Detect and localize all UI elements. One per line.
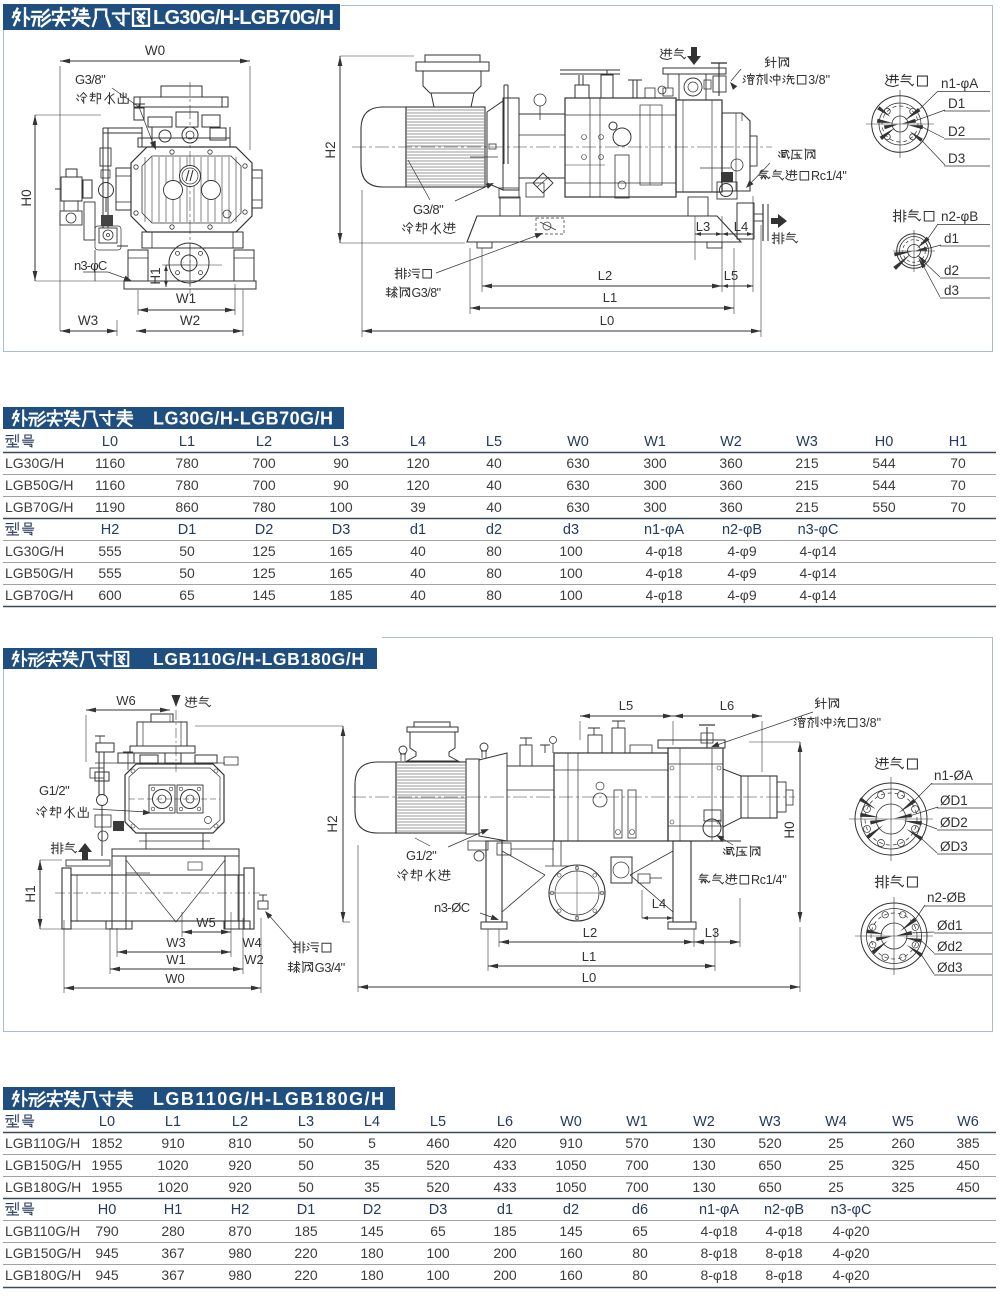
svg-text:145: 145 bbox=[559, 1223, 583, 1239]
svg-text:180: 180 bbox=[360, 1245, 384, 1261]
svg-text:80: 80 bbox=[486, 565, 502, 581]
svg-text:185: 185 bbox=[493, 1223, 517, 1239]
svg-text:d3: d3 bbox=[944, 283, 959, 298]
svg-text:145: 145 bbox=[252, 587, 276, 603]
svg-text:LG30G/H: LG30G/H bbox=[5, 543, 64, 559]
svg-text:185: 185 bbox=[329, 587, 353, 603]
svg-text:W2: W2 bbox=[180, 313, 200, 328]
svg-text:LGB70G/H: LGB70G/H bbox=[5, 499, 73, 515]
svg-text:700: 700 bbox=[625, 1179, 649, 1195]
svg-text:1020: 1020 bbox=[157, 1157, 188, 1173]
svg-text:1955: 1955 bbox=[91, 1179, 122, 1195]
svg-text:H2: H2 bbox=[323, 141, 338, 158]
svg-text:LGB150G/H: LGB150G/H bbox=[5, 1245, 81, 1261]
svg-text:125: 125 bbox=[252, 543, 276, 559]
svg-text:4-φ14: 4-φ14 bbox=[799, 587, 836, 603]
svg-text:630: 630 bbox=[566, 455, 590, 471]
svg-text:50: 50 bbox=[298, 1157, 314, 1173]
svg-text:260: 260 bbox=[891, 1135, 915, 1151]
svg-text:215: 215 bbox=[795, 477, 819, 493]
svg-text:L4: L4 bbox=[364, 1114, 380, 1130]
svg-text:D1: D1 bbox=[297, 1202, 316, 1218]
svg-text:40: 40 bbox=[486, 499, 502, 515]
svg-text:120: 120 bbox=[406, 455, 430, 471]
svg-text:H2: H2 bbox=[231, 1202, 250, 1218]
svg-text:3/8": 3/8" bbox=[859, 716, 881, 730]
svg-text:W0: W0 bbox=[145, 43, 165, 58]
svg-text:n3-φC: n3-φC bbox=[798, 522, 839, 538]
svg-text:4-φ9: 4-φ9 bbox=[727, 587, 757, 603]
svg-text:d1: d1 bbox=[944, 231, 959, 246]
svg-text:700: 700 bbox=[252, 455, 276, 471]
svg-text:L5: L5 bbox=[619, 698, 633, 713]
svg-text:D1: D1 bbox=[948, 96, 965, 111]
svg-text:L2: L2 bbox=[583, 925, 597, 940]
svg-text:700: 700 bbox=[625, 1157, 649, 1173]
svg-text:50: 50 bbox=[179, 565, 195, 581]
svg-text:Ød1: Ød1 bbox=[937, 918, 963, 933]
svg-text:H1: H1 bbox=[148, 267, 163, 284]
svg-text:325: 325 bbox=[891, 1179, 915, 1195]
svg-text:W0: W0 bbox=[165, 971, 185, 986]
svg-text:L3: L3 bbox=[298, 1114, 314, 1130]
svg-text:70: 70 bbox=[950, 477, 966, 493]
svg-text:D3: D3 bbox=[332, 522, 351, 538]
svg-text:L0: L0 bbox=[600, 313, 614, 328]
svg-text:4-φ20: 4-φ20 bbox=[832, 1223, 869, 1239]
svg-text:W6: W6 bbox=[957, 1114, 979, 1130]
svg-text:W4: W4 bbox=[242, 935, 262, 950]
svg-text:W1: W1 bbox=[166, 952, 186, 967]
svg-text:4-φ18: 4-φ18 bbox=[765, 1223, 802, 1239]
svg-text:d2: d2 bbox=[944, 263, 959, 278]
svg-text:L5: L5 bbox=[430, 1114, 446, 1130]
svg-text:4-φ9: 4-φ9 bbox=[727, 565, 757, 581]
svg-text:4-φ18: 4-φ18 bbox=[645, 587, 682, 603]
svg-text:145: 145 bbox=[360, 1223, 384, 1239]
svg-text:L5: L5 bbox=[724, 268, 738, 283]
svg-text:G1/2": G1/2" bbox=[39, 783, 70, 798]
svg-text:LGB110G/H-LGB180G/H: LGB110G/H-LGB180G/H bbox=[153, 1089, 384, 1109]
svg-text:125: 125 bbox=[252, 565, 276, 581]
svg-text:W2: W2 bbox=[720, 434, 742, 450]
svg-text:4-φ18: 4-φ18 bbox=[700, 1223, 737, 1239]
svg-text:W1: W1 bbox=[644, 434, 666, 450]
svg-text:4-φ14: 4-φ14 bbox=[799, 543, 836, 559]
svg-text:433: 433 bbox=[493, 1179, 517, 1195]
svg-text:L1: L1 bbox=[165, 1114, 181, 1130]
svg-text:4-φ9: 4-φ9 bbox=[727, 543, 757, 559]
svg-text:920: 920 bbox=[228, 1157, 252, 1173]
svg-text:LG30G/H: LG30G/H bbox=[5, 455, 64, 471]
svg-text:8-φ18: 8-φ18 bbox=[765, 1267, 802, 1283]
svg-text:945: 945 bbox=[95, 1245, 119, 1261]
svg-text:W3: W3 bbox=[796, 434, 818, 450]
svg-text:810: 810 bbox=[228, 1135, 252, 1151]
svg-text:300: 300 bbox=[643, 477, 667, 493]
svg-text:L4: L4 bbox=[734, 219, 748, 234]
svg-text:n1-ØA: n1-ØA bbox=[934, 768, 973, 783]
svg-text:35: 35 bbox=[364, 1179, 380, 1195]
svg-text:100: 100 bbox=[426, 1267, 450, 1283]
svg-text:870: 870 bbox=[228, 1223, 252, 1239]
svg-text:600: 600 bbox=[98, 587, 122, 603]
svg-text:1852: 1852 bbox=[91, 1135, 122, 1151]
svg-text:Ød3: Ød3 bbox=[937, 960, 963, 975]
svg-text:65: 65 bbox=[179, 587, 195, 603]
svg-text:H1: H1 bbox=[23, 885, 38, 902]
svg-text:L2: L2 bbox=[598, 268, 612, 283]
svg-text:L5: L5 bbox=[486, 434, 502, 450]
svg-text:L4: L4 bbox=[410, 434, 426, 450]
svg-text:280: 280 bbox=[161, 1223, 185, 1239]
svg-text:W0: W0 bbox=[567, 434, 589, 450]
svg-text:H1: H1 bbox=[164, 1202, 183, 1218]
svg-text:200: 200 bbox=[493, 1267, 517, 1283]
svg-text:433: 433 bbox=[493, 1157, 517, 1173]
svg-text:367: 367 bbox=[161, 1245, 185, 1261]
svg-text:200: 200 bbox=[493, 1245, 517, 1261]
svg-text:630: 630 bbox=[566, 477, 590, 493]
svg-text:25: 25 bbox=[828, 1179, 844, 1195]
svg-text:650: 650 bbox=[758, 1179, 782, 1195]
svg-text:W6: W6 bbox=[116, 693, 136, 708]
svg-text:L0: L0 bbox=[582, 970, 596, 985]
svg-text:520: 520 bbox=[426, 1157, 450, 1173]
svg-text:L1: L1 bbox=[582, 949, 596, 964]
svg-text:1955: 1955 bbox=[91, 1157, 122, 1173]
svg-text:80: 80 bbox=[632, 1245, 648, 1261]
svg-text:D3: D3 bbox=[948, 151, 965, 166]
svg-text:50: 50 bbox=[298, 1135, 314, 1151]
svg-text:D3: D3 bbox=[429, 1202, 448, 1218]
svg-text:25: 25 bbox=[828, 1157, 844, 1173]
svg-text:d2: d2 bbox=[563, 1202, 579, 1218]
svg-text:50: 50 bbox=[298, 1179, 314, 1195]
svg-text:65: 65 bbox=[632, 1223, 648, 1239]
svg-text:ØD2: ØD2 bbox=[940, 815, 968, 830]
svg-text:Ød2: Ød2 bbox=[937, 939, 963, 954]
svg-text:360: 360 bbox=[719, 499, 743, 515]
svg-text:780: 780 bbox=[175, 477, 199, 493]
svg-text:220: 220 bbox=[294, 1245, 318, 1261]
svg-text:90: 90 bbox=[333, 477, 349, 493]
svg-text:d1: d1 bbox=[497, 1202, 513, 1218]
svg-text:ØD1: ØD1 bbox=[940, 793, 968, 808]
svg-text:40: 40 bbox=[486, 455, 502, 471]
svg-text:D2: D2 bbox=[363, 1202, 382, 1218]
svg-text:L0: L0 bbox=[102, 434, 118, 450]
svg-text:980: 980 bbox=[228, 1267, 252, 1283]
svg-text:d2: d2 bbox=[486, 522, 502, 538]
svg-text:n1-φA: n1-φA bbox=[644, 522, 684, 538]
svg-text:570: 570 bbox=[625, 1135, 649, 1151]
svg-text:790: 790 bbox=[95, 1223, 119, 1239]
svg-text:L3: L3 bbox=[696, 219, 710, 234]
svg-text:D2: D2 bbox=[948, 124, 965, 139]
svg-text:450: 450 bbox=[956, 1157, 980, 1173]
svg-text:70: 70 bbox=[950, 455, 966, 471]
svg-text:160: 160 bbox=[559, 1245, 583, 1261]
svg-text:L3: L3 bbox=[705, 925, 719, 940]
svg-text:LGB50G/H: LGB50G/H bbox=[5, 477, 73, 493]
svg-text:n2-φB: n2-φB bbox=[764, 1202, 804, 1218]
svg-text:1160: 1160 bbox=[95, 455, 125, 471]
svg-text:d6: d6 bbox=[632, 1202, 648, 1218]
svg-text:L4: L4 bbox=[652, 896, 666, 911]
svg-text:50: 50 bbox=[179, 543, 195, 559]
svg-text:LG30G/H-LGB70G/H: LG30G/H-LGB70G/H bbox=[153, 7, 334, 29]
svg-text:LGB180G/H: LGB180G/H bbox=[5, 1179, 81, 1195]
svg-text:165: 165 bbox=[329, 543, 353, 559]
svg-text:H2: H2 bbox=[325, 815, 340, 832]
svg-text:1190: 1190 bbox=[95, 499, 125, 515]
svg-text:LGB180G/H: LGB180G/H bbox=[5, 1267, 81, 1283]
svg-text:65: 65 bbox=[430, 1223, 446, 1239]
svg-text:120: 120 bbox=[406, 477, 430, 493]
svg-text:1020: 1020 bbox=[157, 1179, 188, 1195]
svg-text:L3: L3 bbox=[333, 434, 349, 450]
svg-text:360: 360 bbox=[719, 455, 743, 471]
svg-text:LGB50G/H: LGB50G/H bbox=[5, 565, 73, 581]
svg-text:160: 160 bbox=[559, 1267, 583, 1283]
svg-text:G1/2": G1/2" bbox=[406, 848, 437, 863]
svg-text:90: 90 bbox=[333, 455, 349, 471]
svg-text:1160: 1160 bbox=[95, 477, 125, 493]
svg-text:4-φ20: 4-φ20 bbox=[832, 1245, 869, 1261]
svg-text:LGB110G/H: LGB110G/H bbox=[5, 1223, 80, 1239]
svg-text:3/8": 3/8" bbox=[808, 73, 830, 87]
svg-text:L1: L1 bbox=[179, 434, 195, 450]
svg-text:W3: W3 bbox=[759, 1114, 781, 1130]
svg-text:215: 215 bbox=[795, 455, 819, 471]
svg-text:G3/8": G3/8" bbox=[75, 72, 106, 87]
svg-text:H0: H0 bbox=[875, 434, 894, 450]
svg-text:W1: W1 bbox=[626, 1114, 648, 1130]
svg-text:LGB110G/H: LGB110G/H bbox=[5, 1135, 80, 1151]
svg-text:L0: L0 bbox=[99, 1114, 115, 1130]
svg-text:910: 910 bbox=[559, 1135, 583, 1151]
svg-text:L2: L2 bbox=[256, 434, 272, 450]
svg-text:4-φ20: 4-φ20 bbox=[832, 1267, 869, 1283]
svg-text:G3/4": G3/4" bbox=[315, 960, 346, 975]
svg-text:300: 300 bbox=[643, 499, 667, 515]
svg-text:ØD3: ØD3 bbox=[940, 839, 968, 854]
svg-text:100: 100 bbox=[426, 1245, 450, 1261]
svg-text:8-φ18: 8-φ18 bbox=[700, 1267, 737, 1283]
svg-text:550: 550 bbox=[872, 499, 896, 515]
svg-text:n2-φB: n2-φB bbox=[941, 209, 978, 224]
svg-text:LG30G/H-LGB70G/H: LG30G/H-LGB70G/H bbox=[153, 409, 333, 429]
svg-text:385: 385 bbox=[956, 1135, 980, 1151]
svg-text:H2: H2 bbox=[101, 522, 120, 538]
svg-text:W1: W1 bbox=[176, 291, 196, 306]
svg-text:8-φ18: 8-φ18 bbox=[700, 1245, 737, 1261]
svg-text:W5: W5 bbox=[892, 1114, 914, 1130]
svg-text:L2: L2 bbox=[232, 1114, 248, 1130]
svg-text:100: 100 bbox=[559, 543, 583, 559]
svg-text:460: 460 bbox=[426, 1135, 450, 1151]
svg-text:215: 215 bbox=[795, 499, 819, 515]
svg-text:n2-φB: n2-φB bbox=[722, 522, 762, 538]
svg-text:4-φ14: 4-φ14 bbox=[799, 565, 836, 581]
svg-text:910: 910 bbox=[161, 1135, 185, 1151]
svg-text:130: 130 bbox=[692, 1157, 716, 1173]
svg-text:80: 80 bbox=[632, 1267, 648, 1283]
svg-text:W3: W3 bbox=[166, 935, 186, 950]
svg-text:H0: H0 bbox=[19, 189, 34, 206]
svg-text:520: 520 bbox=[758, 1135, 782, 1151]
svg-text:650: 650 bbox=[758, 1157, 782, 1173]
svg-text:25: 25 bbox=[828, 1135, 844, 1151]
svg-text:LGB150G/H: LGB150G/H bbox=[5, 1157, 81, 1173]
svg-text:L1: L1 bbox=[603, 290, 617, 305]
svg-text:40: 40 bbox=[410, 543, 426, 559]
svg-text:40: 40 bbox=[410, 587, 426, 603]
svg-text:Rc1/4": Rc1/4" bbox=[751, 873, 787, 887]
svg-text:39: 39 bbox=[410, 499, 426, 515]
svg-text:1050: 1050 bbox=[555, 1179, 586, 1195]
svg-text:360: 360 bbox=[719, 477, 743, 493]
svg-text:H1: H1 bbox=[949, 434, 968, 450]
svg-text:80: 80 bbox=[486, 587, 502, 603]
svg-text:700: 700 bbox=[252, 477, 276, 493]
svg-text:130: 130 bbox=[692, 1135, 716, 1151]
svg-text:35: 35 bbox=[364, 1157, 380, 1173]
svg-text:980: 980 bbox=[228, 1245, 252, 1261]
svg-text:4-φ18: 4-φ18 bbox=[645, 565, 682, 581]
svg-text:W5: W5 bbox=[196, 915, 216, 930]
svg-text:D1: D1 bbox=[178, 522, 197, 538]
svg-text:LGB70G/H: LGB70G/H bbox=[5, 587, 73, 603]
svg-text:W2: W2 bbox=[693, 1114, 715, 1130]
svg-text:544: 544 bbox=[872, 477, 896, 493]
svg-text:LGB110G/H-LGB180G/H: LGB110G/H-LGB180G/H bbox=[153, 649, 364, 669]
svg-text:80: 80 bbox=[486, 543, 502, 559]
svg-text:40: 40 bbox=[486, 477, 502, 493]
svg-text:Rc1/4": Rc1/4" bbox=[811, 169, 847, 183]
svg-text:G3/8": G3/8" bbox=[412, 286, 442, 300]
svg-text:L6: L6 bbox=[720, 698, 734, 713]
svg-text:W4: W4 bbox=[825, 1114, 847, 1130]
svg-text:367: 367 bbox=[161, 1267, 185, 1283]
svg-text:300: 300 bbox=[643, 455, 667, 471]
svg-text:185: 185 bbox=[294, 1223, 318, 1239]
svg-text:n3-φC: n3-φC bbox=[74, 258, 107, 273]
svg-text:W0: W0 bbox=[560, 1114, 582, 1130]
svg-text:220: 220 bbox=[294, 1267, 318, 1283]
svg-text:40: 40 bbox=[410, 565, 426, 581]
svg-text:n2-ØB: n2-ØB bbox=[927, 890, 966, 905]
svg-text:1050: 1050 bbox=[555, 1157, 586, 1173]
svg-text:544: 544 bbox=[872, 455, 896, 471]
svg-text:H0: H0 bbox=[98, 1202, 117, 1218]
svg-text:780: 780 bbox=[175, 455, 199, 471]
svg-text:450: 450 bbox=[956, 1179, 980, 1195]
svg-text:165: 165 bbox=[329, 565, 353, 581]
svg-text:130: 130 bbox=[692, 1179, 716, 1195]
svg-text:180: 180 bbox=[360, 1267, 384, 1283]
svg-text:4-φ18: 4-φ18 bbox=[645, 543, 682, 559]
svg-text:W3: W3 bbox=[78, 313, 98, 328]
svg-text:555: 555 bbox=[98, 565, 122, 581]
svg-text:G3/8": G3/8" bbox=[413, 202, 444, 217]
svg-text:n3-φC: n3-φC bbox=[831, 1202, 872, 1218]
svg-text:5: 5 bbox=[368, 1135, 376, 1151]
svg-text:780: 780 bbox=[252, 499, 276, 515]
svg-text:n1-φA: n1-φA bbox=[699, 1202, 739, 1218]
svg-text:100: 100 bbox=[559, 587, 583, 603]
svg-text:920: 920 bbox=[228, 1179, 252, 1195]
svg-text:8-φ18: 8-φ18 bbox=[765, 1245, 802, 1261]
svg-text:70: 70 bbox=[950, 499, 966, 515]
svg-text:100: 100 bbox=[329, 499, 353, 515]
svg-text:555: 555 bbox=[98, 543, 122, 559]
svg-text:D2: D2 bbox=[255, 522, 274, 538]
svg-text:d1: d1 bbox=[410, 522, 426, 538]
svg-text:L6: L6 bbox=[497, 1114, 513, 1130]
svg-text:n1-φA: n1-φA bbox=[941, 76, 978, 91]
svg-text:H0: H0 bbox=[782, 821, 797, 838]
svg-text:n3-ØC: n3-ØC bbox=[434, 900, 470, 915]
svg-text:325: 325 bbox=[891, 1157, 915, 1173]
svg-text:630: 630 bbox=[566, 499, 590, 515]
svg-text:d3: d3 bbox=[563, 522, 579, 538]
svg-text:100: 100 bbox=[559, 565, 583, 581]
svg-text:420: 420 bbox=[493, 1135, 517, 1151]
svg-text:945: 945 bbox=[95, 1267, 119, 1283]
svg-text:860: 860 bbox=[175, 499, 199, 515]
svg-text:520: 520 bbox=[426, 1179, 450, 1195]
